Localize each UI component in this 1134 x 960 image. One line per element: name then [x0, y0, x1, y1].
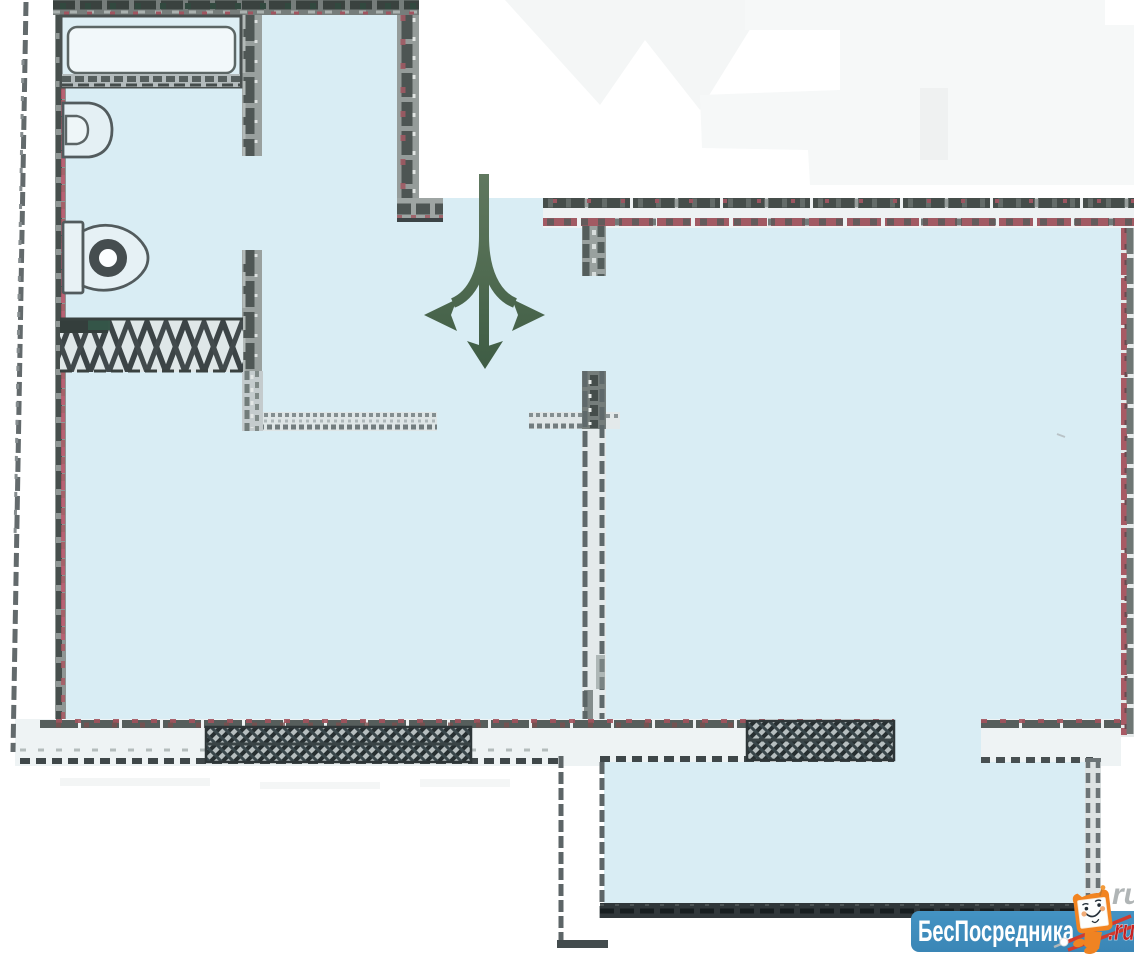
svg-text:.ru: .ru	[1108, 914, 1134, 947]
svg-text:ru: ru	[1112, 878, 1134, 911]
svg-text:БесПосредника: БесПосредника	[918, 915, 1074, 948]
